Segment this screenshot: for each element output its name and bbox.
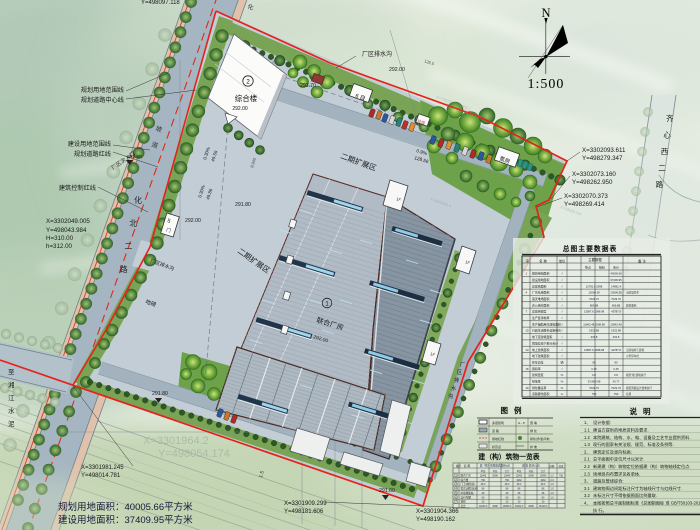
svg-text:泵房(消防水池): 泵房(消防水池)	[461, 487, 478, 491]
svg-text:露天堆场面积: 露天堆场面积	[532, 296, 549, 301]
svg-text:48.3: 48.3	[481, 483, 486, 486]
svg-text:无围墙地下建筑: 无围墙地下建筑	[626, 348, 645, 352]
svg-text:规划道路中心线: 规划道路中心线	[81, 96, 124, 104]
svg-text:所占: 所占	[585, 265, 591, 270]
svg-text:43787.8: 43787.8	[611, 310, 621, 314]
svg-text:1.3: 1.3	[584, 442, 590, 447]
svg-text:名 称: 名 称	[464, 464, 471, 468]
svg-text:说 明: 说 明	[629, 406, 652, 416]
svg-text:2098: 2098	[492, 505, 498, 508]
svg-text:水: 水	[451, 384, 457, 392]
svg-text:合计: 合计	[613, 265, 619, 270]
svg-text:7029.76: 7029.76	[589, 386, 599, 390]
svg-text:综合楼: 综合楼	[235, 93, 258, 103]
svg-text:建设用地面积: 建设用地面积	[532, 277, 549, 282]
svg-text:33.98 9.98: 33.98 9.98	[588, 380, 601, 384]
svg-text:Y=498097.118: Y=498097.118	[141, 0, 180, 6]
svg-text:4、: 4、	[584, 501, 591, 506]
svg-text:建筑控制红线: 建筑控制红线	[59, 184, 96, 192]
svg-text:X=3301981.245: X=3301981.245	[81, 465, 124, 471]
svg-text:湘: 湘	[8, 380, 15, 389]
svg-text:建设用地面积：37409.95平方米: 建设用地面积：37409.95平方米	[58, 514, 193, 526]
svg-text:总平面图中定位尺寸以米计.: 总平面图中定位尺寸以米计.	[593, 456, 644, 463]
svg-text:Y=498269.414: Y=498269.414	[564, 201, 605, 208]
svg-text:单层: 单层	[517, 469, 522, 473]
svg-text:750: 750	[592, 392, 597, 396]
svg-text:X=3302070.373: X=3302070.373	[564, 193, 608, 200]
svg-text:%: %	[561, 386, 564, 390]
svg-text:围墙及地下部分合计: 围墙及地下部分合计	[532, 340, 558, 345]
svg-text:1932.88: 1932.88	[589, 329, 599, 333]
svg-text:11842: 11842	[516, 474, 523, 477]
svg-text:13587.6 2098.98: 13587.6 2098.98	[584, 348, 605, 352]
svg-text:40005.66: 40005.66	[610, 272, 622, 276]
svg-text:%: %	[561, 373, 564, 377]
svg-text:3、: 3、	[584, 479, 591, 484]
svg-text:2098: 2098	[528, 505, 534, 508]
svg-text:地上建筑面积: 地上建筑面积	[532, 347, 549, 352]
svg-text:Y=498014.781: Y=498014.781	[81, 473, 121, 479]
svg-text:总建筑密度: 总建筑密度	[532, 309, 547, 314]
svg-text:292.50: 292.50	[127, 154, 142, 160]
svg-text:道 路: 道 路	[492, 428, 499, 433]
svg-text:806.88: 806.88	[590, 303, 599, 307]
svg-text:建 筑 面 积 (㎡): 建 筑 面 积 (㎡)	[522, 464, 540, 468]
svg-text:12781.6 2098: 12781.6 2098	[586, 284, 603, 288]
svg-text:绿化覆盖率: 绿化覆盖率	[532, 385, 547, 390]
svg-text:厂: 厂	[460, 361, 465, 368]
svg-text:14890.3: 14890.3	[503, 505, 512, 508]
svg-text:地下建筑面积: 地下建筑面积	[532, 353, 549, 358]
svg-text:291.80: 291.80	[235, 202, 251, 208]
svg-text:规划用地面积: 规划用地面积	[532, 271, 549, 276]
svg-text:37409.95: 37409.95	[610, 278, 622, 282]
svg-text:路: 路	[656, 179, 664, 189]
svg-text:规划用地范围线: 规划用地范围线	[81, 86, 124, 94]
svg-text:建设方提供的地质资料及要求.: 建设方提供的地质资料及要求.	[593, 427, 649, 434]
svg-text:7栋: 7栋	[559, 473, 563, 477]
svg-text:地磅: 地磅	[461, 500, 467, 504]
svg-text:编号: 编号	[456, 464, 462, 468]
svg-text:多层: 多层	[493, 469, 498, 473]
svg-text:按照风貌设计要求执行: 按照风貌设计要求执行	[626, 386, 652, 390]
svg-text:自行车棚: 自行车棚	[461, 495, 472, 499]
svg-text:总图主要数据表: 总图主要数据表	[563, 244, 618, 253]
svg-text:辆: 辆	[560, 359, 563, 364]
svg-text:X=3301964.2: X=3301964.2	[143, 435, 209, 447]
svg-text:护 坡: 护 坡	[530, 444, 537, 449]
svg-text:H=310.00: H=310.00	[46, 235, 74, 242]
svg-text:1:500: 1:500	[528, 77, 565, 92]
svg-text:806.88: 806.88	[612, 303, 621, 307]
svg-text:用地红线: 用地红线	[492, 436, 504, 441]
svg-text:多层建筑: 多层建筑	[492, 420, 504, 425]
svg-text:0.45: 0.45	[591, 367, 597, 371]
svg-text:江: 江	[8, 394, 15, 402]
svg-text:16: 16	[526, 367, 530, 371]
svg-text:2: 2	[246, 79, 250, 86]
svg-text:执 行。: 执 行。	[593, 507, 607, 514]
svg-text:13942.48: 13942.48	[610, 322, 622, 326]
svg-text:标高点: 标高点	[492, 444, 501, 449]
svg-text:Y=498054.174: Y=498054.174	[158, 448, 230, 460]
svg-text:13042.3: 13042.3	[515, 505, 524, 508]
svg-text:Y=498190.162: Y=498190.162	[416, 517, 456, 523]
svg-text:生产辅助用房建筑面积: 生产辅助用房建筑面积	[532, 321, 561, 326]
svg-text:14891.4: 14891.4	[611, 284, 621, 288]
svg-text:厂区排水沟: 厂区排水沟	[362, 50, 392, 58]
svg-text:10: 10	[526, 329, 530, 333]
svg-text:Y=498181.606: Y=498181.606	[284, 509, 324, 515]
svg-text:2098: 2098	[528, 474, 534, 477]
svg-text:760: 760	[481, 479, 486, 482]
svg-text:图 例: 图 例	[500, 405, 523, 415]
svg-text:合计: 合计	[461, 504, 467, 508]
svg-text:沟: 沟	[448, 392, 453, 400]
svg-text:44787.8: 44787.8	[611, 348, 621, 352]
svg-text:2、: 2、	[584, 449, 591, 454]
svg-text:2.2: 2.2	[584, 464, 590, 469]
svg-text:联合厂房: 联合厂房	[461, 473, 472, 477]
svg-text:二: 二	[124, 242, 132, 251]
svg-text:建筑密度: 建筑密度	[532, 372, 544, 377]
svg-text:19: 19	[526, 386, 530, 390]
svg-text:13587.6 2098.98: 13587.6 2098.98	[584, 310, 605, 314]
svg-text:760: 760	[505, 479, 510, 482]
svg-text:11842.48 2098.98: 11842.48 2098.98	[583, 322, 605, 326]
svg-text:48.3: 48.3	[517, 483, 522, 486]
svg-text:1932.88: 1932.88	[611, 329, 621, 333]
svg-text:12608.38: 12608.38	[588, 291, 600, 295]
svg-text:1、: 1、	[584, 420, 591, 425]
svg-text:道路硬化面积: 道路硬化面积	[532, 391, 549, 396]
svg-text:13806.38: 13806.38	[610, 291, 622, 295]
svg-text:1932: 1932	[516, 479, 522, 482]
svg-text:G - P: G - P	[518, 421, 525, 425]
svg-text:48.3: 48.3	[541, 483, 546, 486]
svg-text:心: 心	[663, 131, 671, 140]
svg-text:层数: 层数	[549, 464, 555, 468]
svg-text:北: 北	[129, 219, 137, 228]
svg-text:0.8: 0.8	[614, 373, 618, 377]
svg-text:多层: 多层	[529, 469, 534, 473]
svg-text:停车泊位: 停车泊位	[532, 359, 544, 364]
svg-text:二: 二	[658, 164, 666, 173]
svg-text:排: 排	[454, 376, 459, 384]
svg-text:垃圾收集站: 垃圾收集站	[461, 491, 474, 495]
svg-text:办公用房面积: 办公用房面积	[532, 302, 549, 307]
svg-text:Y=498262.950: Y=498262.950	[572, 179, 613, 186]
svg-text:333.8: 333.8	[591, 335, 598, 339]
svg-text:合计: 合计	[541, 469, 546, 473]
svg-text:80: 80	[615, 360, 618, 364]
svg-text:高度: 高度	[558, 464, 564, 468]
svg-text:新建建（构）筑物定位依据建（构）筑物轴线定位点.: 新建建（构）筑物定位依据建（构）筑物轴线定位点.	[593, 463, 690, 470]
svg-text:80: 80	[593, 360, 596, 364]
svg-text:11842: 11842	[480, 474, 487, 477]
svg-text:备 注: 备 注	[638, 259, 646, 264]
svg-text:1.2: 1.2	[584, 435, 590, 440]
svg-text:本图按照总平面制图标准《总图制图标 准 GB/T50103-: 本图按照总平面制图标准《总图制图标 准 GB/T50103-2010》	[593, 500, 700, 507]
svg-text:西: 西	[661, 147, 669, 156]
svg-text:建筑物周边间距标注尺寸为轴线尺寸与红线尺寸.: 建筑物周边间距标注尺寸为轴线尺寸与红线尺寸.	[593, 485, 682, 492]
svg-text:X=3302093.611: X=3302093.611	[582, 147, 626, 154]
svg-text:无围墙停车: 无围墙停车	[626, 291, 639, 295]
svg-text:单层: 单层	[481, 469, 486, 473]
svg-text:N: N	[541, 6, 550, 20]
svg-text:12230.3: 12230.3	[479, 505, 488, 508]
svg-text:15140.3: 15140.3	[539, 505, 548, 508]
svg-text:3.2: 3.2	[584, 493, 590, 498]
svg-text:0.8: 0.8	[592, 373, 596, 377]
svg-text:绿地率: 绿地率	[532, 379, 541, 384]
svg-text:3.1: 3.1	[584, 486, 590, 491]
svg-text:13940: 13940	[504, 474, 511, 477]
svg-text:生产区绿地率: 生产区绿地率	[532, 315, 549, 320]
svg-text:333.8: 333.8	[613, 335, 620, 339]
svg-text:2098: 2098	[492, 474, 498, 477]
svg-text:2.1: 2.1	[584, 457, 590, 462]
svg-text:厂房仓库面积: 厂房仓库面积	[532, 290, 549, 295]
svg-text:至: 至	[8, 368, 15, 376]
svg-text:地下室建筑面积: 地下室建筑面积	[532, 334, 552, 339]
svg-text:规划用地面积：40005.66平方米: 规划用地面积：40005.66平方米	[58, 501, 193, 513]
svg-text:13: 13	[526, 348, 530, 352]
svg-text:总建筑面积: 总建筑面积	[532, 283, 547, 288]
svg-text:292.00: 292.00	[185, 218, 201, 224]
svg-text:主要数据: 主要数据	[588, 257, 602, 262]
svg-text:X=3301909.299: X=3301909.299	[284, 501, 327, 507]
svg-text:名 称: 名 称	[539, 259, 547, 264]
svg-text:13940: 13940	[540, 474, 547, 477]
svg-text:化: 化	[134, 195, 142, 205]
svg-text:绿化(乔/灌)草地: 绿化(乔/灌)草地	[530, 437, 550, 441]
svg-text:7029.76: 7029.76	[611, 297, 621, 301]
svg-text:1.1: 1.1	[584, 428, 590, 433]
svg-text:1932: 1932	[540, 479, 546, 482]
svg-text:道路及管线综合:: 道路及管线综合:	[593, 478, 623, 485]
svg-text:291.60: 291.60	[379, 488, 395, 494]
svg-text:Y=498279.347: Y=498279.347	[582, 155, 623, 162]
svg-text:建筑定位及竖向标高:: 建筑定位及竖向标高:	[593, 448, 632, 455]
svg-text:7029.76: 7029.76	[611, 386, 621, 390]
svg-text:48.3: 48.3	[505, 483, 510, 486]
svg-text:齐: 齐	[666, 113, 674, 123]
svg-text:单位: 单位	[559, 259, 566, 264]
svg-text:750: 750	[614, 392, 619, 396]
svg-text:建（构）筑物基底面积(㎡): 建（构）筑物基底面积(㎡)	[480, 464, 510, 468]
svg-text:Y=498043.984: Y=498043.984	[46, 227, 87, 234]
svg-text:路: 路	[120, 264, 128, 274]
svg-text:43.77: 43.77	[613, 380, 620, 384]
svg-text:估算: 估算	[626, 392, 632, 396]
svg-text:泥: 泥	[8, 420, 15, 428]
svg-text:综合楼: 综合楼	[461, 478, 469, 482]
svg-text:水: 水	[8, 406, 15, 415]
svg-text:2.3: 2.3	[584, 471, 590, 476]
svg-text:未标注尺寸不得依据图面比例量取.: 未标注尺寸不得依据图面比例量取.	[593, 492, 657, 499]
svg-text:X=3301904.366: X=3301904.366	[416, 509, 459, 515]
svg-text:设计依据:: 设计依据:	[593, 419, 611, 426]
svg-text:绿 化: 绿 化	[530, 428, 537, 433]
svg-text:围 墙: 围 墙	[530, 420, 537, 425]
svg-text:建筑面积: 建筑面积	[626, 303, 637, 307]
svg-text:%: %	[561, 380, 564, 384]
svg-text:门卫(地磅房): 门卫(地磅房)	[461, 482, 476, 486]
svg-text:合计: 合计	[505, 469, 510, 473]
svg-text:本院建筑、结构、水、电、设备及工艺专业提供资料.: 本院建筑、结构、水、电、设备及工艺专业提供资料.	[593, 434, 690, 441]
svg-text:行政生活服务设施用房: 行政生活服务设施用房	[532, 328, 561, 333]
svg-text:X=3302049.005: X=3302049.005	[46, 218, 90, 225]
svg-text:场地竖向布置详见各单体.: 场地竖向布置详见各单体.	[593, 470, 640, 477]
svg-text:292.00: 292.00	[232, 106, 248, 112]
svg-text:指标: 指标	[599, 265, 605, 270]
svg-text:按照"规"建筑执行: 按照"规"建筑执行	[626, 373, 646, 377]
svg-text:291.80: 291.80	[152, 391, 168, 397]
svg-text:291.70: 291.70	[300, 83, 316, 89]
svg-text:X=3302073.160: X=3302073.160	[572, 171, 616, 178]
svg-text:0.45: 0.45	[613, 367, 619, 371]
svg-text:7029.76: 7029.76	[589, 297, 599, 301]
svg-text:h=312.00: h=312.00	[46, 243, 73, 250]
svg-text:规划道路红线: 规划道路红线	[74, 150, 111, 158]
svg-text:容积率: 容积率	[532, 366, 541, 371]
svg-text:建设用地范围线: 建设用地范围线	[68, 140, 111, 148]
svg-text:区: 区	[457, 369, 462, 376]
svg-text:建（构）筑物一览表: 建（构）筑物一览表	[477, 452, 539, 461]
svg-text:小型停车位: 小型停车位	[626, 354, 639, 358]
svg-text:现行的国家有关法规、规范、标准及条例等.: 现行的国家有关法规、规范、标准及条例等.	[593, 441, 674, 448]
svg-text:292.00: 292.00	[389, 67, 405, 73]
